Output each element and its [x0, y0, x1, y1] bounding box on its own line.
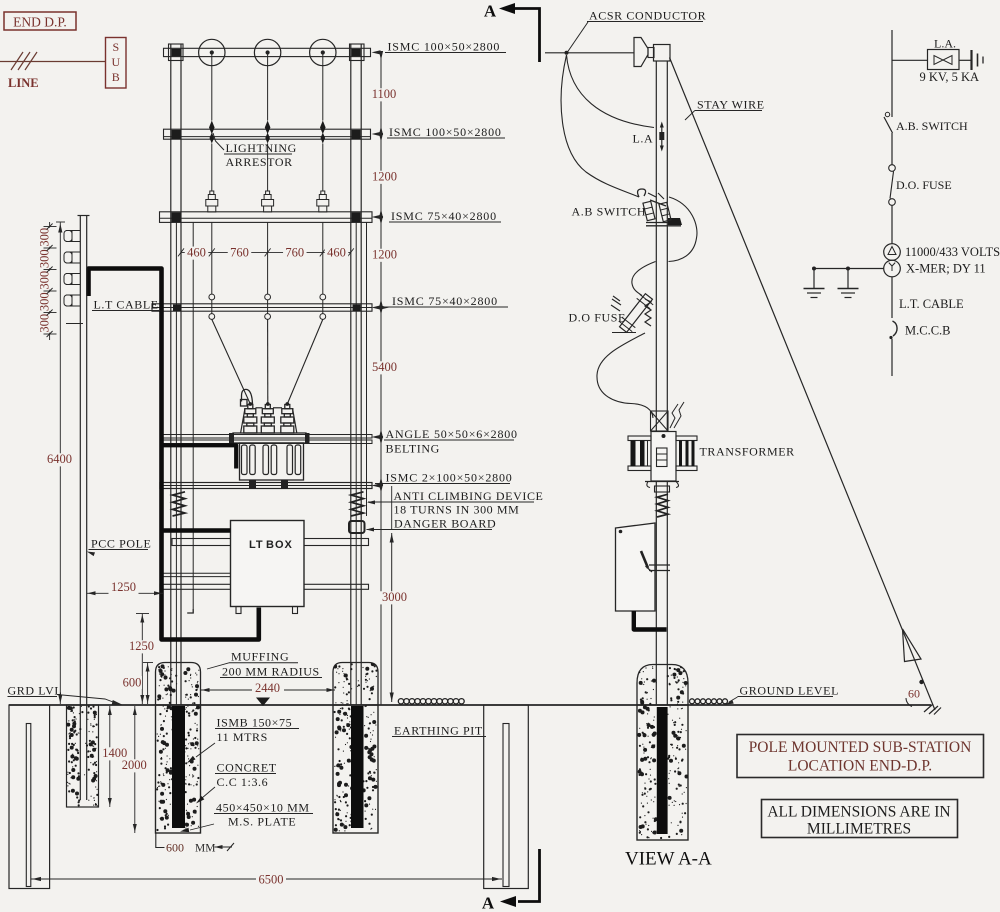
- svg-text:ANGLE 50×50×6×2800: ANGLE 50×50×6×2800: [386, 427, 518, 441]
- svg-text:9 KV, 5 KA: 9 KV, 5 KA: [920, 70, 980, 84]
- svg-text:ARRESTOR: ARRESTOR: [226, 155, 293, 169]
- svg-text:ISMC 2×100×50×2800: ISMC 2×100×50×2800: [386, 471, 513, 485]
- svg-text:LINE: LINE: [8, 76, 39, 90]
- svg-text:M.C.C.B: M.C.C.B: [905, 324, 951, 338]
- svg-text:POLE MOUNTED SUB-STATION: POLE MOUNTED SUB-STATION: [749, 739, 972, 756]
- svg-text:3000: 3000: [382, 590, 407, 604]
- svg-text:C.C 1:3.6: C.C 1:3.6: [217, 775, 269, 789]
- svg-text:B: B: [112, 70, 120, 84]
- svg-text:300: 300: [38, 314, 52, 333]
- svg-text:60: 60: [908, 687, 920, 701]
- svg-text:VIEW A-A: VIEW A-A: [625, 849, 712, 870]
- svg-text:STAY WIRE: STAY WIRE: [697, 98, 765, 112]
- svg-text:ALL DIMENSIONS ARE IN: ALL DIMENSIONS ARE IN: [767, 804, 950, 821]
- svg-text:EARTHING PIT: EARTHING PIT: [394, 724, 483, 738]
- svg-text:ANTI CLIMBING DEVICE: ANTI CLIMBING DEVICE: [394, 489, 544, 503]
- svg-text:MILLIMETRES: MILLIMETRES: [807, 821, 911, 838]
- svg-text:X-MER; DY 11: X-MER; DY 11: [906, 262, 986, 276]
- svg-text:GRD LVL: GRD LVL: [8, 684, 63, 698]
- svg-text:DANGER BOARD: DANGER BOARD: [394, 517, 496, 531]
- svg-text:6400: 6400: [47, 452, 72, 466]
- svg-text:450×450×10 MM: 450×450×10 MM: [216, 801, 310, 815]
- svg-text:ISMC 75×40×2800: ISMC 75×40×2800: [391, 209, 497, 223]
- svg-text:ISMC 100×50×2800: ISMC 100×50×2800: [388, 40, 501, 54]
- svg-text:300: 300: [38, 292, 52, 311]
- svg-text:L.T. CABLE: L.T. CABLE: [899, 297, 964, 311]
- svg-text:300: 300: [38, 228, 52, 247]
- svg-text:2440: 2440: [255, 681, 280, 695]
- svg-text:END D.P.: END D.P.: [13, 15, 67, 30]
- svg-text:CONCRET: CONCRET: [217, 761, 277, 775]
- svg-text:D.O. FUSE: D.O. FUSE: [896, 178, 952, 192]
- svg-text:A.B. SWITCH: A.B. SWITCH: [896, 119, 968, 133]
- svg-text:L.A.: L.A.: [934, 37, 956, 51]
- svg-text:TRANSFORMER: TRANSFORMER: [700, 445, 795, 459]
- svg-text:1100: 1100: [372, 87, 397, 101]
- svg-text:A: A: [484, 2, 497, 21]
- svg-text:MM: MM: [195, 843, 215, 855]
- svg-text:460: 460: [187, 245, 206, 259]
- svg-text:LT: LT: [249, 539, 264, 551]
- svg-text:A: A: [482, 894, 495, 912]
- svg-text:300: 300: [38, 249, 52, 268]
- svg-text:ISMC 75×40×2800: ISMC 75×40×2800: [392, 294, 498, 308]
- svg-text:ISMC 100×50×2800: ISMC 100×50×2800: [389, 125, 502, 139]
- svg-text:2000: 2000: [122, 758, 147, 772]
- svg-text:BELTING: BELTING: [386, 442, 440, 456]
- svg-text:MUFFING: MUFFING: [231, 650, 289, 664]
- svg-text:5400: 5400: [372, 360, 397, 374]
- svg-text:D.O FUSE: D.O FUSE: [569, 311, 626, 325]
- svg-text:BOX: BOX: [266, 539, 293, 551]
- svg-text:300: 300: [38, 271, 52, 290]
- svg-text:600: 600: [166, 841, 184, 855]
- svg-text:S: S: [112, 40, 119, 54]
- svg-text:1250: 1250: [111, 580, 136, 594]
- svg-text:200 MM RADIUS: 200 MM RADIUS: [222, 665, 320, 679]
- svg-text:LIGHTNING: LIGHTNING: [226, 141, 297, 155]
- svg-text:M.S. PLATE: M.S. PLATE: [228, 815, 296, 829]
- svg-text:1200: 1200: [372, 170, 397, 184]
- svg-text:11 MTRS: 11 MTRS: [217, 730, 268, 744]
- svg-text:LOCATION END-D.P.: LOCATION END-D.P.: [788, 758, 932, 775]
- svg-text:760: 760: [230, 245, 249, 259]
- svg-text:1250: 1250: [129, 639, 154, 653]
- svg-text:11000/433 VOLTS: 11000/433 VOLTS: [905, 245, 1000, 259]
- svg-text:GROUND LEVEL: GROUND LEVEL: [740, 684, 840, 698]
- svg-text:1200: 1200: [372, 248, 397, 262]
- svg-text:ACSR CONDUCTOR: ACSR CONDUCTOR: [589, 9, 706, 23]
- svg-text:A.B SWITCH: A.B SWITCH: [572, 205, 647, 219]
- svg-text:460: 460: [327, 245, 346, 259]
- svg-text:18 TURNS IN 300 MM: 18 TURNS IN 300 MM: [394, 503, 520, 517]
- svg-text:600: 600: [123, 676, 142, 690]
- svg-text:PCC POLE: PCC POLE: [91, 537, 151, 551]
- svg-text:L.T CABLE: L.T CABLE: [94, 298, 159, 312]
- svg-text:U: U: [111, 55, 120, 69]
- svg-text:6500: 6500: [259, 873, 284, 887]
- svg-text:760: 760: [285, 245, 304, 259]
- svg-text:L.A: L.A: [633, 132, 654, 146]
- svg-text:ISMB 150×75: ISMB 150×75: [217, 716, 293, 730]
